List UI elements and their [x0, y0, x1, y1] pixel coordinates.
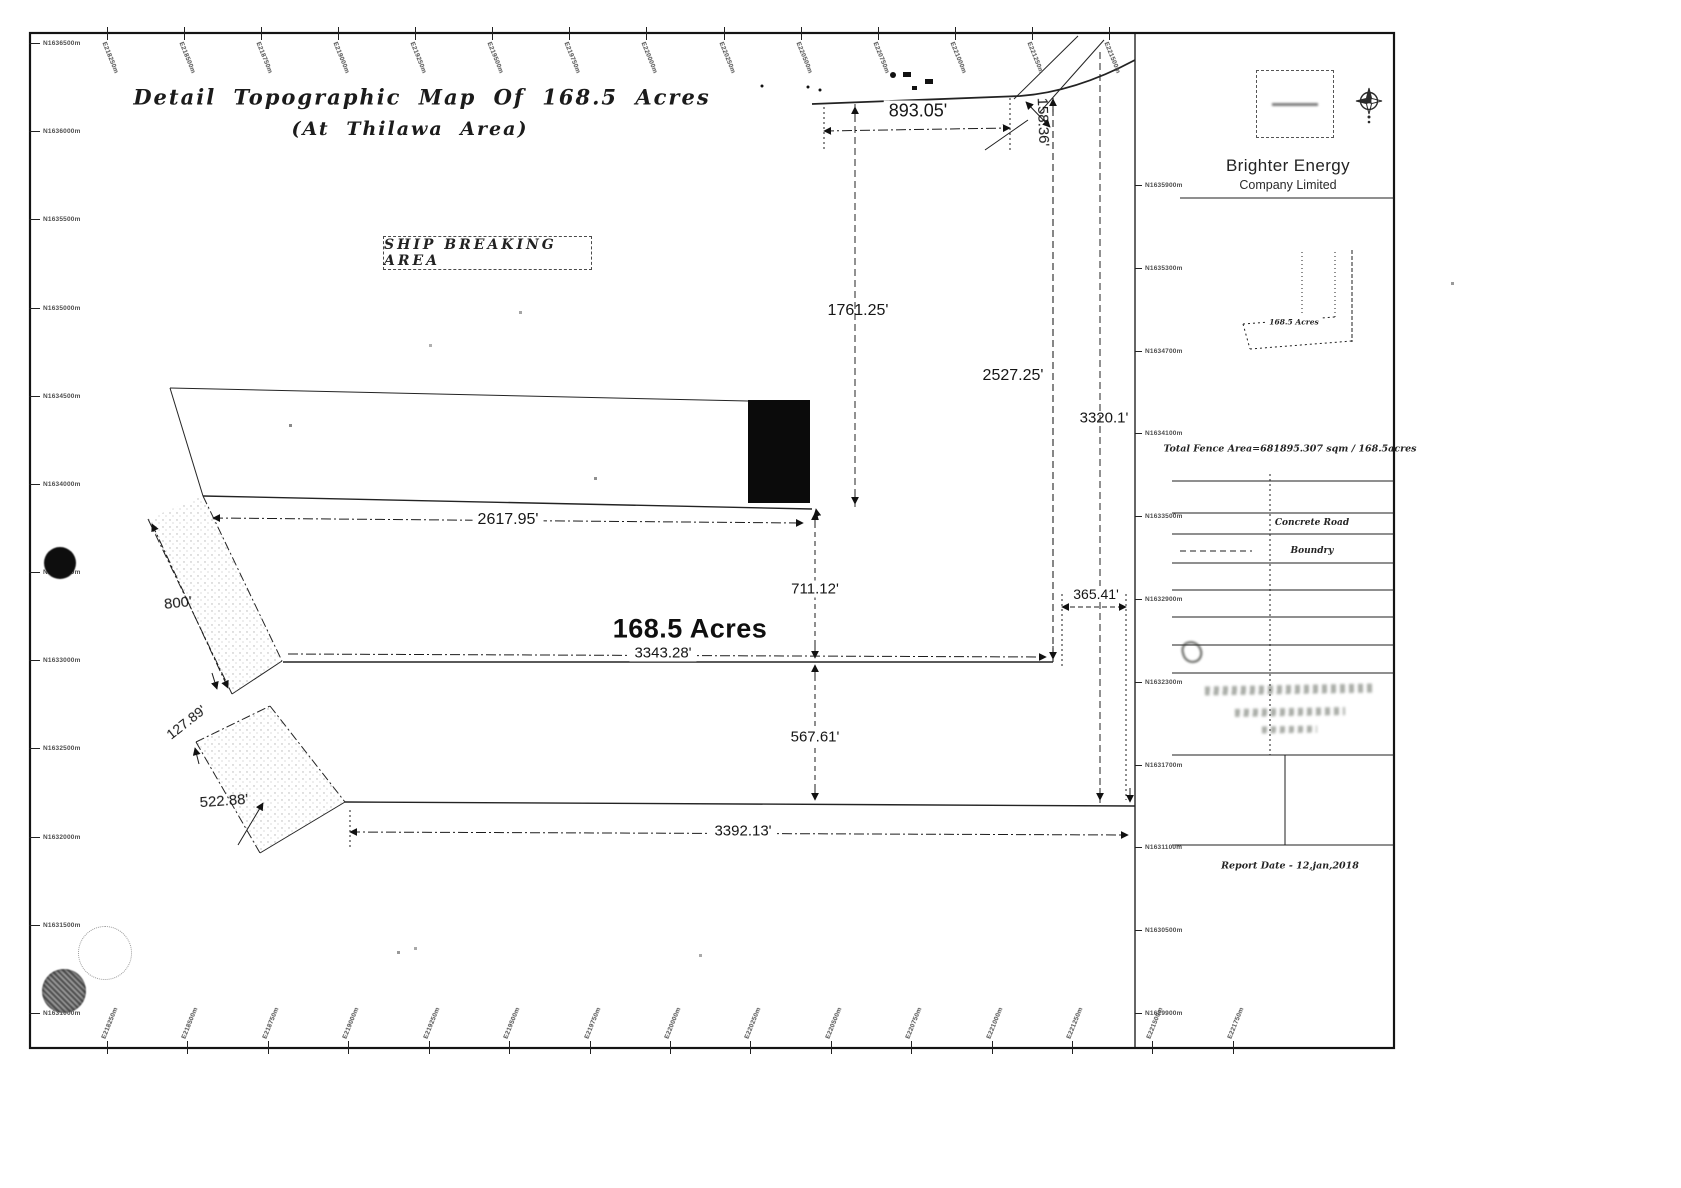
grid-coordinate-label: E219500m [504, 1000, 516, 1048]
faint-circle-artifact [78, 926, 132, 980]
grid-coordinate-label: E218500m [182, 1000, 194, 1048]
grid-coordinate-label: E219500m [487, 33, 499, 81]
scan-noise [0, 0, 1, 1]
grid-coordinate-label: N1631500m [32, 922, 82, 930]
grid-coordinate-label: E220250m [745, 1000, 757, 1048]
dim-bottom-width: 3392.13' [709, 823, 776, 840]
compass-rose-icon [1354, 86, 1384, 124]
grid-coordinate-label: N1634100m [1139, 430, 1189, 438]
grid-coordinate-label: N1634000m [32, 481, 82, 489]
total-fence-area: Total Fence Area=681895.307 sqm / 168.5a… [1164, 444, 1417, 455]
grid-coordinate-label: N1635500m [32, 216, 82, 224]
inset-map-label: 168.5 Acres [1267, 318, 1320, 327]
grid-coordinate-label: E221000m [950, 33, 962, 81]
company-logo-box [1256, 70, 1334, 138]
dim-right-vertical-inner: 2527.25' [983, 367, 1044, 385]
grid-coordinate-label: E220500m [796, 33, 808, 81]
dimension-lines [152, 98, 1130, 847]
area-label: 168.5 Acres [613, 614, 768, 645]
grid-coordinate-label: E219250m [424, 1000, 436, 1048]
map-subtitle: (At Thilawa Area) [292, 118, 529, 140]
dim-west-strip-length: 800' [163, 593, 193, 613]
grid-coordinate-label: E218250m [102, 1000, 114, 1048]
grid-coordinate-label: E220750m [873, 33, 885, 81]
grid-coordinate-label: E220000m [665, 1000, 677, 1048]
grid-coordinate-label: N1632500m [32, 745, 82, 753]
grid-coordinate-label: E219250m [410, 33, 422, 81]
grid-coordinate-label: E221500m [1104, 33, 1116, 81]
parcel-boundary [148, 36, 1135, 853]
grid-coordinate-label: N1635000m [32, 305, 82, 313]
grid-coordinate-label: E220000m [641, 33, 653, 81]
dim-top-right-edge: 158.36' [1034, 97, 1053, 146]
company-logo-icon [1272, 103, 1318, 106]
punch-hole-artifact [44, 547, 76, 579]
left-edge-labels: N1636500mN1636000mN1635500mN1635000mN163… [32, 40, 82, 1018]
map-title: Detail Topographic Map Of 168.5 Acres [133, 85, 710, 110]
grid-coordinate-label: N1635300m [1139, 265, 1189, 273]
grid-coordinate-label: E221750m [1228, 1000, 1240, 1048]
scanned-survey-sheet: Detail Topographic Map Of 168.5 Acres (A… [0, 0, 1681, 1188]
stamp-text-line [1262, 726, 1317, 734]
grid-coordinate-label: E219750m [585, 1000, 597, 1048]
hatched-circle-artifact [42, 969, 86, 1013]
grid-coordinate-label: N1636000m [32, 128, 82, 136]
grid-coordinate-label: E220250m [719, 33, 731, 81]
building-footprint [748, 400, 810, 503]
grid-coordinate-label: E218500m [179, 33, 191, 81]
grid-coordinate-label: N1631100m [1139, 844, 1189, 852]
grid-coordinate-label: E219000m [333, 33, 345, 81]
dim-upper-arm-width: 2617.95' [473, 511, 544, 529]
dim-right-offset: 365.41' [1068, 586, 1124, 602]
company-subtitle: Company Limited [1239, 178, 1336, 192]
grid-coordinate-label: N1631700m [1139, 762, 1189, 770]
grid-coordinate-label: E219750m [564, 33, 576, 81]
grid-coordinate-label: E218750m [263, 1000, 275, 1048]
bottom-edge-labels: E218250mE218500mE218750mE219000mE219250m… [102, 1000, 1240, 1048]
grid-coordinate-label: E218250m [102, 33, 114, 81]
grid-coordinate-label: N1632900m [1139, 596, 1189, 604]
grid-coordinate-label: N1634700m [1139, 348, 1189, 356]
grid-coordinate-label: E220500m [826, 1000, 838, 1048]
grid-coordinate-label: E219000m [343, 1000, 355, 1048]
dim-middle-vertical-upper: 711.12' [787, 581, 843, 598]
grid-coordinate-label: N1632000m [32, 834, 82, 842]
legend-concrete-road-label: Concrete Road [1275, 518, 1349, 528]
grid-coordinate-label: N1632300m [1139, 679, 1189, 687]
grid-coordinate-label: N1630500m [1139, 927, 1189, 935]
top-edge-labels: E218250mE218500mE218750mE219000mE219250m… [102, 33, 1116, 81]
dim-middle-width: 3343.28' [629, 645, 696, 662]
grid-coordinate-label: E221250m [1067, 1000, 1079, 1048]
company-name: Brighter Energy [1226, 156, 1350, 176]
grid-coordinate-label: N1634500m [32, 393, 82, 401]
dim-right-vertical-outer: 3320.1' [1080, 410, 1129, 427]
grid-coordinate-label: E218750m [256, 33, 268, 81]
grid-coordinate-label: N1633000m [32, 657, 82, 665]
grid-coordinate-label: N1633500m [1139, 513, 1189, 521]
grid-coordinate-label: N1635900m [1139, 182, 1189, 190]
dim-middle-vertical-lower: 567.61' [787, 729, 844, 746]
dim-southwest-strip-length: 522.88' [199, 791, 249, 811]
dim-upper-left-vertical: 1761.25' [828, 302, 889, 320]
report-date: Report Date - 12,jan,2018 [1221, 861, 1359, 872]
ship-breaking-area-stamp: SHIP BREAKING AREA [383, 236, 592, 270]
dim-top-edge: 893.05' [884, 101, 953, 122]
sheet-frame [30, 33, 1394, 1048]
grid-coordinate-label: E221250m [1027, 33, 1039, 81]
grid-coordinate-label: N1629900m [1139, 1010, 1189, 1018]
inset-parcel-map [1243, 250, 1352, 349]
ship-breaking-area-label: SHIP BREAKING AREA [384, 237, 591, 269]
titleblock-edge-labels: N1635900mN1635300mN1634700mN1634100mN163… [1139, 182, 1189, 1018]
legend-boundary-label: Boundry [1291, 546, 1334, 556]
grid-coordinate-label: E220750m [906, 1000, 918, 1048]
grid-coordinate-label: N1636500m [32, 40, 82, 48]
grid-coordinate-label: E221000m [987, 1000, 999, 1048]
